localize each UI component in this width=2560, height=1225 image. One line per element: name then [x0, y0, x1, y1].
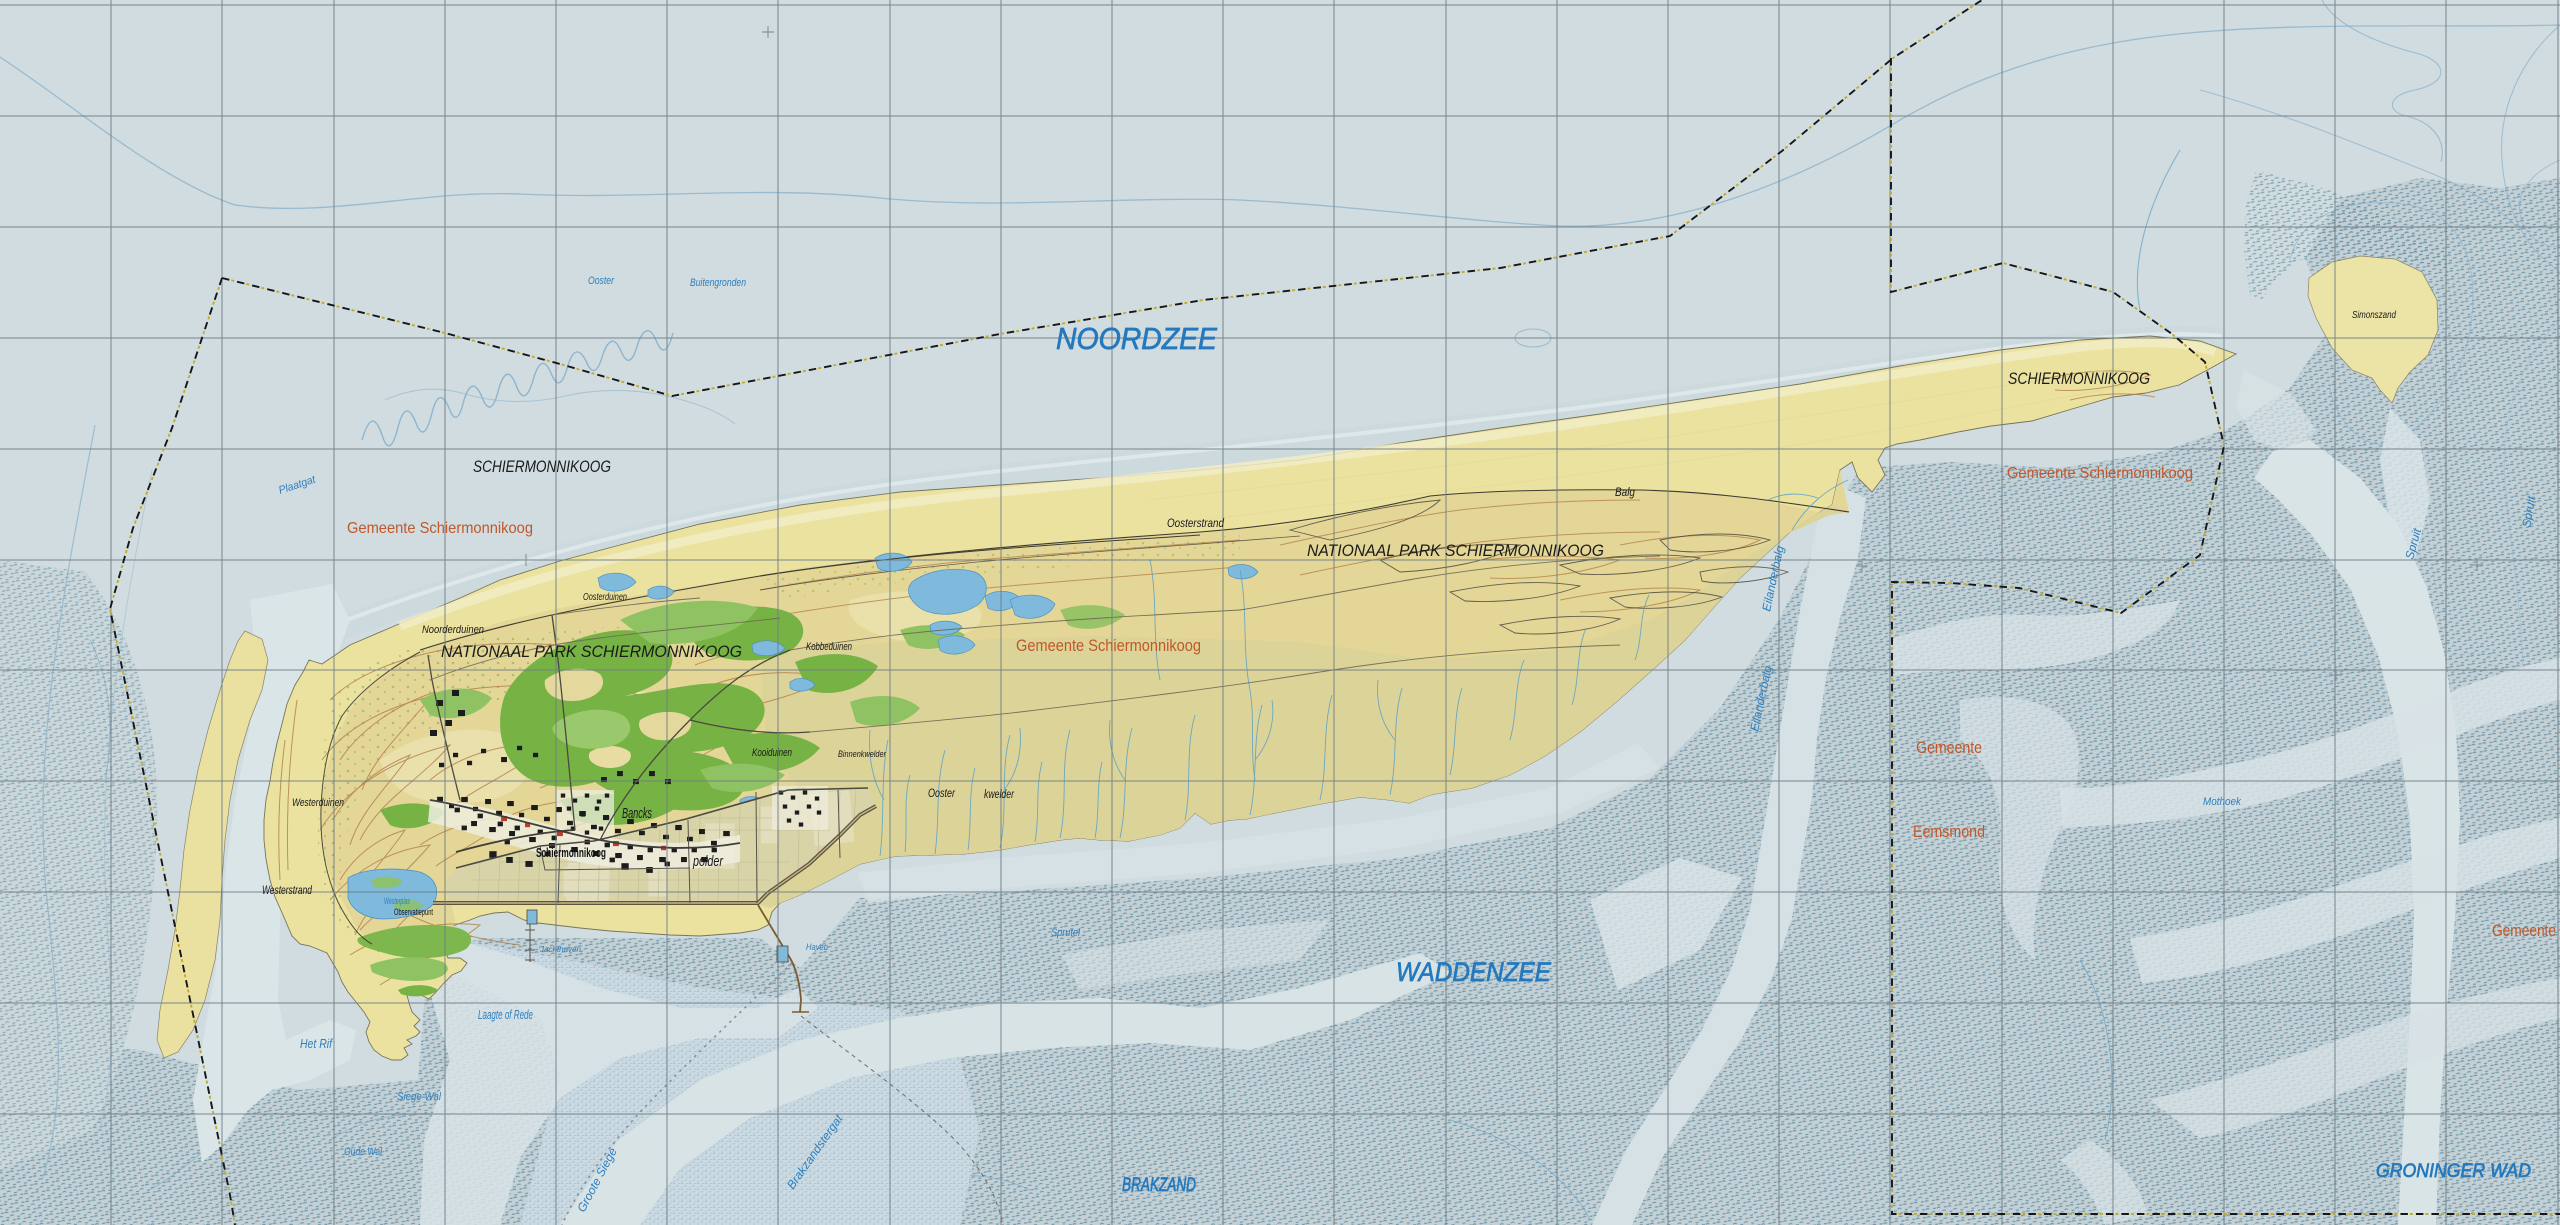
svg-text:kwelder: kwelder: [984, 787, 1015, 801]
svg-text:Bancks: Bancks: [622, 805, 652, 822]
svg-text:WADDENZEE: WADDENZEE: [1396, 957, 1552, 987]
svg-text:Kobbeduinen: Kobbeduinen: [806, 641, 852, 653]
svg-text:Ooster: Ooster: [588, 275, 615, 287]
svg-text:NOORDZEE: NOORDZEE: [1056, 321, 1217, 356]
svg-text:Observatiepunt: Observatiepunt: [394, 907, 433, 917]
svg-text:Haven: Haven: [806, 942, 828, 952]
svg-text:Schiermonnikoog: Schiermonnikoog: [536, 845, 606, 860]
svg-text:Gemeente Schiermonnikoog: Gemeente Schiermonnikoog: [2007, 465, 2193, 482]
svg-text:Jachthaven: Jachthaven: [539, 945, 581, 954]
svg-text:Binnenkwelder: Binnenkwelder: [838, 749, 887, 759]
svg-text:Simonszand: Simonszand: [2352, 310, 2396, 321]
svg-text:Oude Wal: Oude Wal: [344, 1146, 382, 1158]
svg-text:Westerplas: Westerplas: [384, 896, 410, 906]
svg-text:GRONINGER WAD: GRONINGER WAD: [2376, 1161, 2531, 1182]
svg-text:Balg: Balg: [1615, 485, 1635, 499]
svg-text:Gemeente Schiermonnikoog: Gemeente Schiermonnikoog: [1016, 636, 1201, 655]
svg-text:Gemeente: Gemeente: [2492, 921, 2556, 940]
svg-text:Buitengronden: Buitengronden: [690, 277, 746, 289]
svg-text:Gemeente Schiermonnikoog: Gemeente Schiermonnikoog: [347, 520, 533, 537]
svg-text:Sprutel: Sprutel: [1051, 927, 1080, 939]
svg-text:Het Rif: Het Rif: [300, 1036, 333, 1051]
svg-text:Oosterduinen: Oosterduinen: [583, 592, 627, 603]
svg-text:SCHIERMONNIKOOG: SCHIERMONNIKOOG: [473, 457, 611, 476]
svg-text:Kooiduinen: Kooiduinen: [752, 747, 792, 759]
svg-text:NATIONAAL PARK SCHIERMONNIKOOG: NATIONAAL PARK SCHIERMONNIKOOG: [1307, 541, 1604, 560]
svg-text:Gemeente: Gemeente: [1916, 738, 1982, 757]
svg-text:Eemsmond: Eemsmond: [1913, 822, 1985, 841]
svg-text:Westerduinen: Westerduinen: [292, 797, 344, 809]
svg-text:polder: polder: [692, 853, 723, 870]
svg-text:Oosterstrand: Oosterstrand: [1167, 516, 1224, 530]
svg-text:Westerstrand: Westerstrand: [262, 883, 312, 897]
svg-text:Ooster: Ooster: [928, 786, 956, 800]
svg-text:Mothoek: Mothoek: [2203, 796, 2241, 808]
svg-text:Siege Wal: Siege Wal: [397, 1091, 441, 1103]
svg-text:NATIONAAL PARK SCHIERMONNIKOOG: NATIONAAL PARK SCHIERMONNIKOOG: [441, 642, 742, 661]
svg-text:Laagte of Rede: Laagte of Rede: [478, 1007, 533, 1022]
svg-text:BRAKZAND: BRAKZAND: [1122, 1175, 1196, 1196]
svg-text:SCHIERMONNIKOOG: SCHIERMONNIKOOG: [2008, 369, 2150, 388]
svg-text:Noorderduinen: Noorderduinen: [422, 624, 484, 636]
